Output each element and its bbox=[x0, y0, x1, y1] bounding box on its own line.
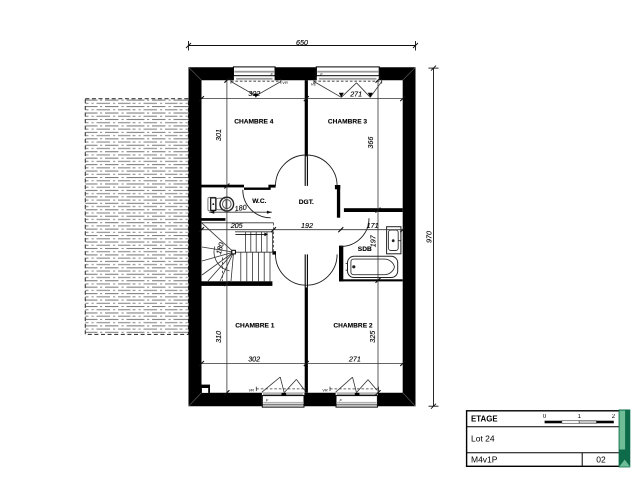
svg-text:197: 197 bbox=[368, 234, 377, 247]
svg-text:CHAMBRE 2: CHAMBRE 2 bbox=[333, 322, 373, 329]
svg-text:205: 205 bbox=[230, 221, 244, 230]
svg-text:Lot 24: Lot 24 bbox=[471, 434, 495, 444]
svg-text:271: 271 bbox=[349, 89, 362, 98]
svg-text:CHAMBRE 3: CHAMBRE 3 bbox=[328, 119, 368, 126]
svg-text:271: 271 bbox=[348, 355, 361, 364]
svg-text:366: 366 bbox=[366, 137, 375, 149]
svg-text:192: 192 bbox=[301, 221, 313, 230]
svg-text:650: 650 bbox=[296, 38, 308, 47]
svg-text:301: 301 bbox=[214, 129, 223, 141]
svg-text:W.C.: W.C. bbox=[252, 198, 266, 205]
svg-text:VR: VR bbox=[249, 387, 255, 392]
svg-text:970: 970 bbox=[425, 231, 434, 243]
svg-text:310: 310 bbox=[214, 331, 223, 343]
svg-text:DGT.: DGT. bbox=[299, 199, 314, 206]
svg-text:302: 302 bbox=[248, 89, 260, 98]
svg-text:302: 302 bbox=[248, 355, 260, 364]
svg-text:M4v1P: M4v1P bbox=[471, 454, 498, 464]
svg-text:ETAGE: ETAGE bbox=[471, 414, 498, 423]
svg-text:171: 171 bbox=[367, 221, 379, 230]
svg-text:VR: VR bbox=[282, 80, 288, 85]
svg-text:CHAMBRE 4: CHAMBRE 4 bbox=[234, 119, 274, 126]
svg-text:VE: VE bbox=[311, 82, 317, 87]
svg-text:CHAMBRE 1: CHAMBRE 1 bbox=[235, 322, 275, 329]
svg-text:325: 325 bbox=[368, 330, 377, 343]
svg-text:180: 180 bbox=[234, 203, 247, 214]
svg-text:VR: VR bbox=[322, 387, 328, 392]
svg-text:02: 02 bbox=[596, 454, 606, 464]
